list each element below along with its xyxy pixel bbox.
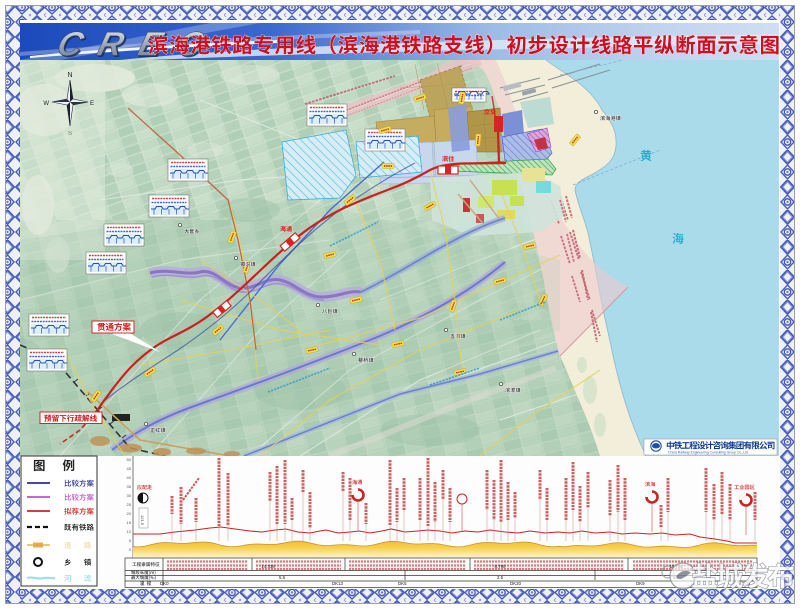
svg-text:2.5: 2.5 xyxy=(497,575,504,580)
svg-text:DK5: DK5 xyxy=(398,581,407,586)
svg-text:25: 25 xyxy=(127,502,132,507)
svg-text:35: 35 xyxy=(127,484,132,489)
svg-text:121.5: 121.5 xyxy=(140,515,145,526)
svg-text:N: N xyxy=(67,72,72,79)
svg-text:5.5: 5.5 xyxy=(279,575,286,580)
svg-text:15: 15 xyxy=(127,520,132,525)
svg-text:50: 50 xyxy=(127,457,132,462)
svg-text:8.790: 8.790 xyxy=(495,564,507,569)
svg-text:S: S xyxy=(68,131,72,137)
svg-text:45: 45 xyxy=(127,466,132,471)
svg-text:DK0: DK0 xyxy=(160,581,169,586)
svg-text:DK9: DK9 xyxy=(636,581,645,586)
svg-text:W: W xyxy=(43,101,49,107)
svg-text:30: 30 xyxy=(127,493,132,498)
svg-text:DK20: DK20 xyxy=(510,581,522,586)
svg-text:China Railway Engineering Cons: China Railway Engineering Consulting Gro… xyxy=(668,451,748,455)
svg-text:E: E xyxy=(90,101,94,107)
svg-text:40: 40 xyxy=(127,475,132,480)
svg-text:20: 20 xyxy=(127,511,132,516)
svg-text:14.338: 14.338 xyxy=(261,564,275,569)
svg-text:DK13: DK13 xyxy=(332,581,344,586)
svg-text:10: 10 xyxy=(127,529,132,534)
